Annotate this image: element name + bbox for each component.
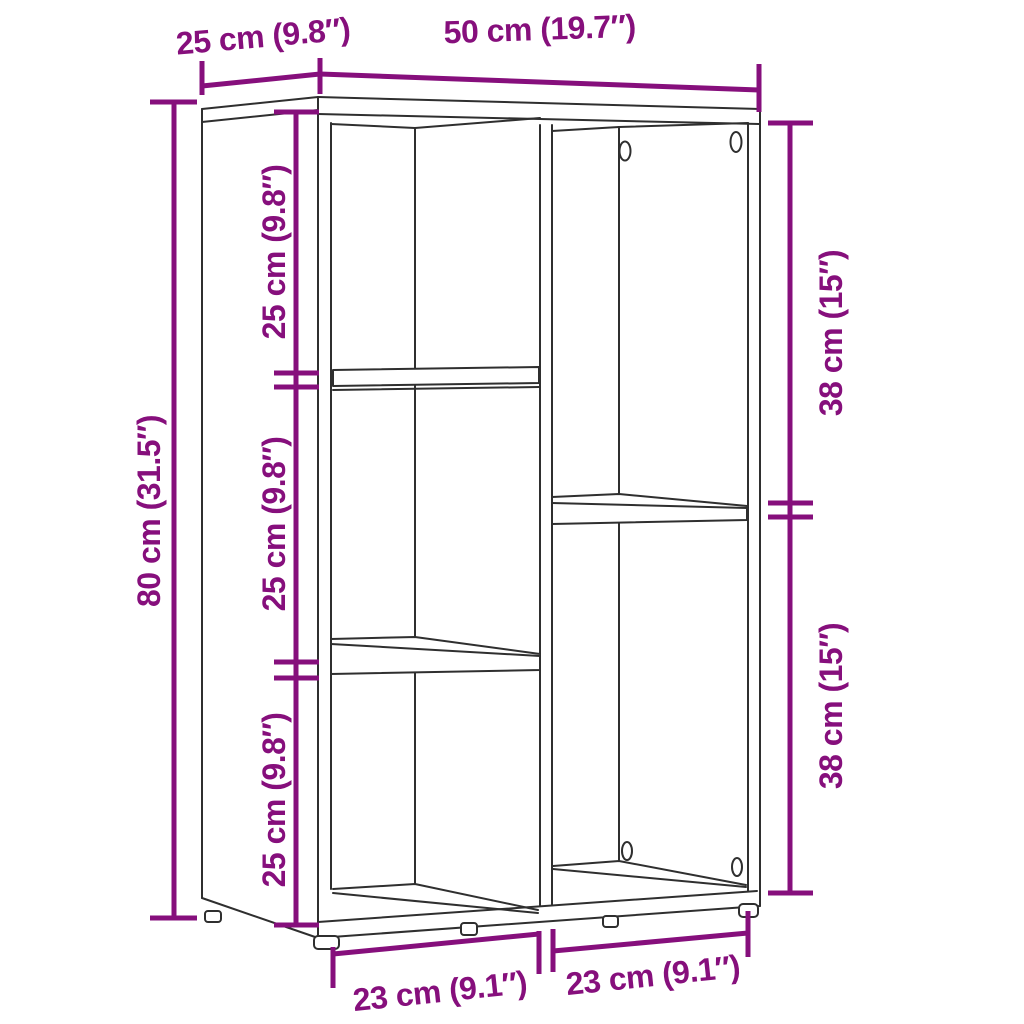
foot-back-left — [205, 911, 221, 922]
cabinet-top-left-edge — [202, 97, 318, 109]
dimension-top — [202, 58, 759, 112]
label-left-cube-2: 25 cm (9.8″) — [256, 437, 292, 612]
foot-middle-right — [603, 916, 618, 927]
shelf-left-lower — [331, 637, 540, 674]
dimension-right-sections — [768, 123, 813, 893]
shelf-right — [552, 494, 747, 524]
left-cubby-side-top-edge — [331, 124, 415, 128]
screw-hole-top-right — [731, 132, 742, 152]
label-right-section-2: 38 cm (15″) — [813, 623, 849, 789]
label-bottom-right-width: 23 cm (9.1″) — [564, 948, 742, 1002]
label-left-cube-1: 25 cm (9.8″) — [256, 165, 292, 340]
dim-line-top-width — [320, 74, 759, 90]
right-floor-back-edge — [553, 861, 746, 885]
label-bottom-left-width: 23 cm (9.1″) — [351, 964, 529, 1018]
screw-hole-bottom-left — [622, 842, 632, 860]
dim-line-bottom-right — [553, 933, 748, 951]
label-side-height: 80 cm (31.5″) — [131, 415, 167, 607]
cabinet-top-edge — [318, 97, 760, 109]
right-cubby-side-top-edge — [552, 127, 619, 131]
dim-line-top-depth — [202, 74, 320, 86]
bookshelf-diagram-svg: 25 cm (9.8″) 50 cm (19.7″) 80 cm (31.5″)… — [0, 0, 1024, 1024]
plinth-top-line — [318, 891, 757, 922]
dim-line-bottom-left — [333, 934, 539, 954]
label-left-cube-3: 25 cm (9.8″) — [256, 713, 292, 888]
right-cubby-back-top-edge — [619, 123, 748, 127]
right-floor-front-edge — [553, 869, 746, 887]
label-top-depth: 25 cm (9.8″) — [174, 10, 351, 61]
screw-hole-bottom-right — [732, 858, 742, 876]
label-right-section-1: 38 cm (15″) — [813, 250, 849, 416]
left-cubby-back-top-edge — [415, 118, 540, 128]
shelf-left-upper-underside — [333, 387, 539, 390]
shelf-left-upper — [333, 367, 539, 386]
label-top-width: 50 cm (19.7″) — [443, 8, 636, 51]
foot-middle-left — [461, 923, 477, 935]
screw-hole-top-left — [620, 142, 631, 161]
dimension-diagram: 25 cm (9.8″) 50 cm (19.7″) 80 cm (31.5″)… — [0, 0, 1024, 1024]
